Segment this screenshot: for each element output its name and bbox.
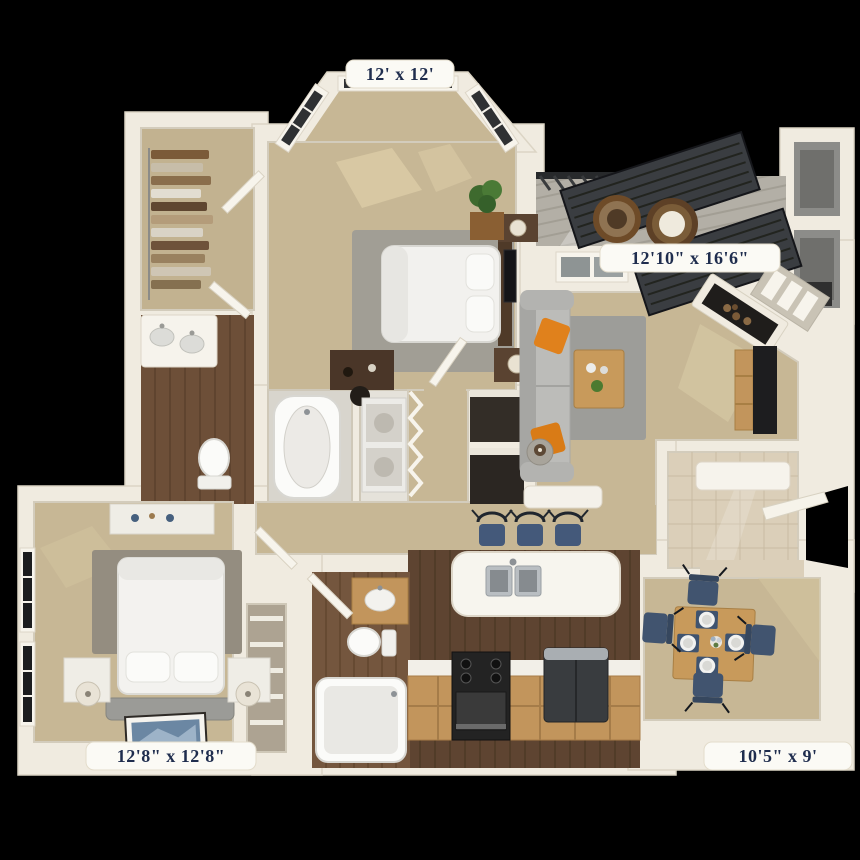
faucet [391, 691, 397, 697]
dresser [110, 504, 214, 534]
floor-plan-svg: 12' x 12' 12'10" x 16'6" 12'8" x 12'8" 1… [0, 0, 860, 860]
place-setting [725, 633, 748, 652]
bathtub [316, 678, 406, 762]
pillow [466, 254, 494, 290]
table-plant [591, 380, 603, 392]
place-setting [677, 634, 700, 653]
bed [118, 558, 224, 694]
faucet [304, 409, 310, 415]
range [452, 652, 510, 740]
coffee-table [574, 350, 624, 408]
patio-chair [649, 201, 695, 247]
floor-plan-image: 12' x 12' 12'10" x 16'6" 12'8" x 12'8" 1… [0, 0, 860, 860]
toilet [348, 628, 396, 656]
double-vanity [141, 315, 217, 367]
dimension-label-living-room: 12'10" x 16'6" [600, 244, 780, 272]
nightstand [64, 658, 110, 706]
pillow [174, 652, 218, 682]
vanity [352, 578, 408, 624]
dimension-text: 12'10" x 16'6" [631, 248, 749, 268]
island [452, 552, 620, 616]
faucet [510, 559, 517, 566]
bedroom-door-opening [424, 386, 466, 396]
place-setting [696, 610, 719, 629]
entry-cabinet [696, 462, 790, 490]
dimension-text: 12' x 12' [366, 64, 435, 84]
plant-table [470, 212, 504, 240]
dining-table [673, 607, 755, 682]
place-setting [696, 656, 719, 675]
bed [382, 246, 500, 342]
dimension-text: 10'5" x 9' [739, 746, 818, 766]
refrigerator [544, 648, 608, 722]
side-table [527, 439, 553, 465]
tv-console [735, 346, 777, 434]
washer-dryer [362, 398, 406, 492]
dimension-label-dining-area: 10'5" x 9' [704, 742, 852, 770]
toilet [198, 439, 231, 489]
dimension-label-second-bedroom: 12'8" x 12'8" [86, 742, 256, 770]
lamp [510, 220, 526, 236]
bathtub [274, 396, 340, 498]
oven-handle [456, 724, 506, 729]
pillow [126, 652, 170, 682]
tv [753, 346, 777, 434]
nightstand [228, 658, 270, 706]
dimension-text: 12'8" x 12'8" [117, 746, 226, 766]
console-table [524, 486, 602, 508]
dimension-label-master-bedroom: 12' x 12' [346, 60, 454, 88]
patio-chair [596, 198, 638, 240]
wall-tv [504, 250, 516, 302]
pillow [466, 296, 494, 332]
